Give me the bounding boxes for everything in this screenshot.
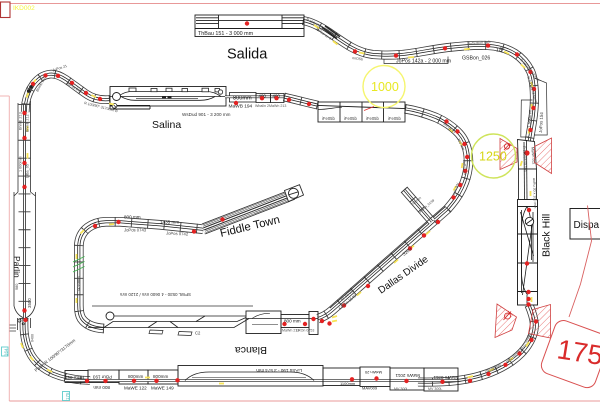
svg-text:JoPos 0743: JoPos 0743 [124,228,147,233]
svg-text:164: 164 [4,348,9,356]
svg-text:PBur 064: PBur 064 [64,375,84,380]
svg-text:iFe05b: iFe05b [344,116,357,121]
svg-text:MaWn 213: MaWn 213 [269,104,286,108]
svg-text:MaWn 20: MaWn 20 [364,370,382,375]
svg-text:1000: 1000 [371,80,399,94]
svg-text:GSBon_026: GSBon_026 [462,56,490,62]
svg-text:WsDud 901 - 3 200 mm: WsDud 901 - 3 200 mm [182,112,231,117]
svg-text:1 000mm: 1 000mm [19,156,23,172]
svg-text:MaWn 0311: MaWn 0311 [433,375,458,380]
svg-text:MaWE 149: MaWE 149 [151,386,174,391]
svg-text:18°: 18° [496,48,504,54]
svg-text:MV 300L: MV 300L [428,387,442,391]
svg-text:MAV009: MAV009 [362,386,378,391]
svg-text:BhmE 212: BhmE 212 [26,114,30,132]
svg-text:0400: 0400 [31,334,35,342]
svg-text:1250: 1250 [479,150,507,164]
svg-text:Wballn 2: Wballn 2 [255,104,269,108]
svg-text:BhmE 213: BhmE 213 [19,112,23,130]
svg-text:iFe05b: iFe05b [388,116,401,121]
svg-text:Black Hill: Black Hill [541,214,553,257]
svg-text:1.500mm: 1.500mm [527,109,533,128]
svg-text:1100mm: 1100mm [340,381,356,386]
svg-text:Salida: Salida [227,47,268,63]
svg-text:MaWB 194: MaWB 194 [229,104,253,110]
svg-text:SPWL 0530 - 4 0600 mm / 2120 m: SPWL 0530 - 4 0600 mm / 2120 mm [120,292,191,297]
svg-text:MV 300L: MV 300L [394,387,408,391]
svg-text:800mm: 800mm [128,374,143,379]
svg-text:JoPos 142a - 2 000 mm: JoPos 142a - 2 000 mm [396,59,451,65]
svg-text:Dispa: Dispa [574,220,600,231]
svg-text:800 mm: 800 mm [124,215,141,220]
svg-text:175: 175 [65,392,70,400]
svg-text:1435 mm: 1435 mm [160,220,179,225]
svg-text:800 mm: 800 mm [284,319,301,324]
svg-text:C2: C2 [195,331,201,336]
svg-text:iFe05b: iFe05b [322,116,335,121]
svg-text:MaWn 2011: MaWn 2011 [395,373,420,378]
svg-text:800 mm: 800 mm [93,385,110,390]
svg-text:PBur 193: PBur 193 [92,375,112,380]
svg-text:MaWE 122: MaWE 122 [124,386,147,391]
svg-text:3500: 3500 [27,298,32,308]
svg-text:LiBa_05: LiBa_05 [26,164,30,178]
svg-text:LROn 0753: LROn 0753 [296,329,314,333]
svg-text:iFe05b: iFe05b [366,116,379,121]
svg-text:Salina: Salina [152,119,181,131]
svg-text:Blanca: Blanca [235,344,267,356]
svg-text:1435mm: 1435mm [76,276,81,292]
svg-text:800mm: 800mm [153,374,168,379]
svg-text:980: 980 [15,284,19,290]
svg-text:ThBau 151 - 3 000 mm: ThBau 151 - 3 000 mm [198,31,254,37]
svg-text:Parlin: Parlin [12,256,22,278]
svg-text:IKD002: IKD002 [13,5,35,12]
svg-text:800mm: 800mm [233,96,252,102]
svg-text:LiASu 190 - 3 574 mm: LiASu 190 - 3 574 mm [256,368,302,373]
